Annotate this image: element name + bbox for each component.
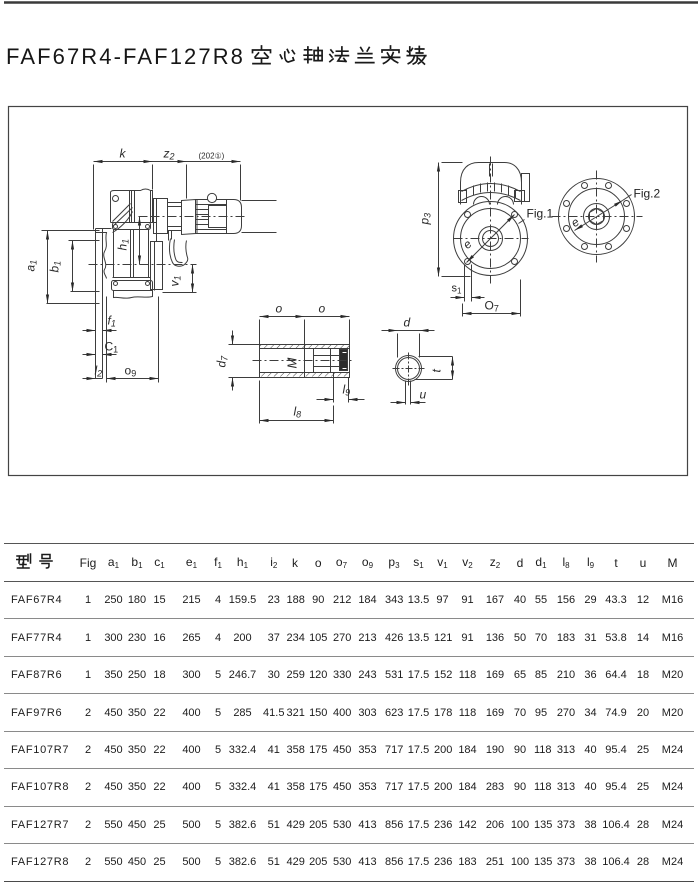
svg-text:h1: h1 xyxy=(116,239,131,251)
svg-text:v1: v1 xyxy=(168,275,183,286)
svg-text:b1: b1 xyxy=(48,261,63,273)
svg-text:o: o xyxy=(276,302,283,316)
svg-text:l9: l9 xyxy=(343,383,351,398)
svg-text:d7: d7 xyxy=(215,355,230,368)
svg-text:t: t xyxy=(430,369,444,373)
svg-text:l8: l8 xyxy=(294,405,302,420)
svg-text:FAF67R4-FAF127R8: FAF67R4-FAF127R8 xyxy=(6,44,245,69)
svg-text:k: k xyxy=(120,147,127,161)
svg-text:Fig.1: Fig.1 xyxy=(527,207,554,221)
svg-text:p3: p3 xyxy=(418,213,433,226)
svg-text:d: d xyxy=(404,316,411,330)
svg-text:C1: C1 xyxy=(105,340,119,355)
svg-text:s1: s1 xyxy=(452,283,463,296)
svg-text:O7: O7 xyxy=(485,299,499,314)
svg-text:a1: a1 xyxy=(24,260,39,272)
svg-text:l2: l2 xyxy=(95,364,103,379)
svg-text:M: M xyxy=(285,358,300,369)
svg-text:f1: f1 xyxy=(108,314,116,329)
svg-text:(202①): (202①) xyxy=(199,152,225,161)
svg-text:o: o xyxy=(319,302,326,316)
svg-text:o9: o9 xyxy=(125,364,137,379)
svg-text:Fig.2: Fig.2 xyxy=(634,187,661,201)
svg-text:u: u xyxy=(420,388,427,402)
svg-text:z2: z2 xyxy=(163,147,175,162)
